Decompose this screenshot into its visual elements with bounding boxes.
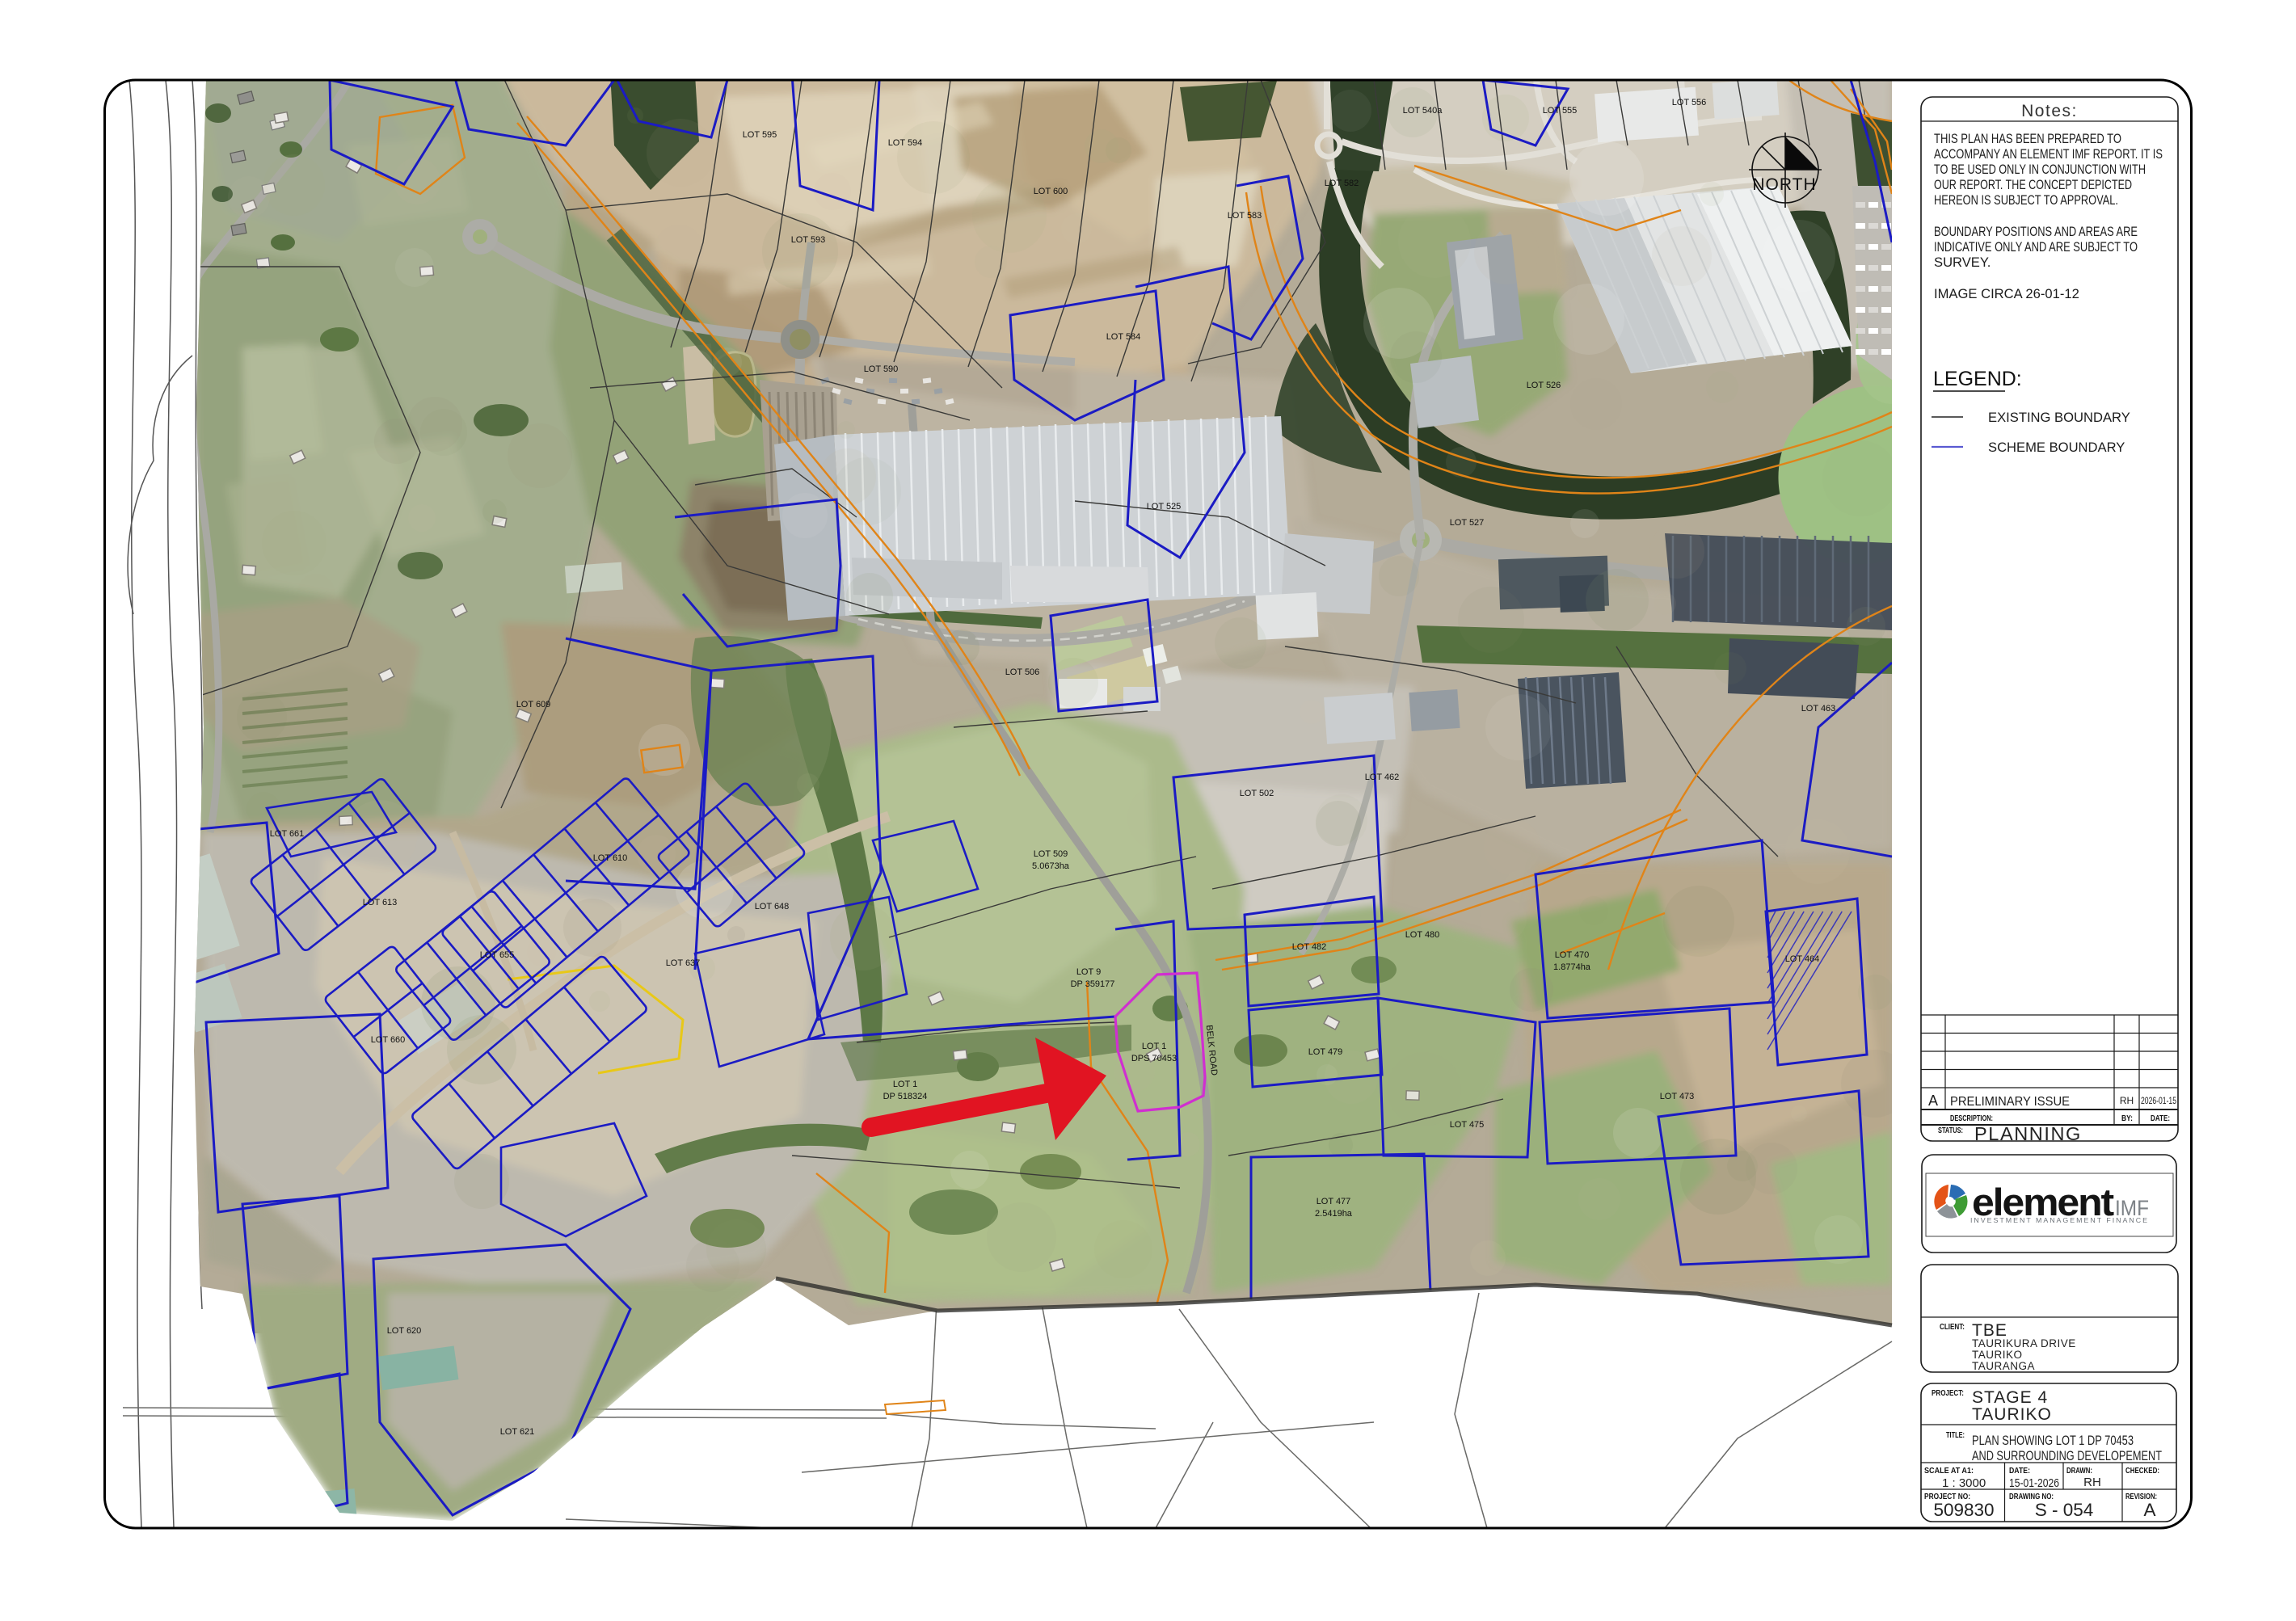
svg-text:LOT 1: LOT 1: [1142, 1042, 1166, 1051]
svg-text:LOT 556: LOT 556: [1672, 98, 1707, 107]
svg-text:DPS 70453: DPS 70453: [1131, 1054, 1177, 1063]
svg-text:Notes:: Notes:: [2021, 102, 2078, 120]
svg-text:1.8774ha: 1.8774ha: [1553, 962, 1591, 972]
svg-text:LOT 506: LOT 506: [1005, 667, 1040, 677]
svg-text:HEREON IS SUBJECT TO APPROVAL: HEREON IS SUBJECT TO APPROVAL.: [1934, 192, 2118, 208]
svg-text:LOT 613: LOT 613: [363, 898, 398, 907]
svg-text:DATE:: DATE:: [2151, 1114, 2170, 1123]
svg-text:LOT 648: LOT 648: [755, 902, 790, 912]
svg-text:2.5419ha: 2.5419ha: [1315, 1209, 1353, 1219]
svg-text:CHECKED:: CHECKED:: [2125, 1467, 2159, 1476]
svg-text:LOT 582: LOT 582: [1325, 179, 1359, 188]
svg-text:LOT 594: LOT 594: [888, 138, 923, 148]
svg-text:RH: RH: [2120, 1095, 2134, 1106]
svg-text:STAGE 4: STAGE 4: [1972, 1388, 2048, 1407]
svg-text:DRAWN:: DRAWN:: [2066, 1467, 2092, 1476]
svg-text:TAURANGA: TAURANGA: [1972, 1360, 2035, 1372]
svg-text:LOT 473: LOT 473: [1660, 1092, 1695, 1101]
svg-text:TAURIKURA DRIVE: TAURIKURA DRIVE: [1972, 1337, 2076, 1349]
svg-text:DESCRIPTION:: DESCRIPTION:: [1950, 1114, 1993, 1123]
svg-text:BY:: BY:: [2121, 1114, 2133, 1123]
svg-text:LOT 661: LOT 661: [270, 829, 305, 839]
svg-text:DP 359177: DP 359177: [1071, 979, 1115, 989]
svg-text:LOT 462: LOT 462: [1365, 773, 1400, 782]
svg-text:TO BE USED ONLY IN CONJUNCTIO: TO BE USED ONLY IN CONJUNCTION WITH: [1934, 162, 2146, 177]
svg-text:509830: 509830: [1933, 1500, 1994, 1520]
svg-text:LEGEND:: LEGEND:: [1933, 368, 2022, 390]
svg-text:5.0673ha: 5.0673ha: [1032, 861, 1070, 871]
svg-text:LOT 1: LOT 1: [893, 1080, 917, 1089]
svg-text:1 : 3000: 1 : 3000: [1942, 1476, 1986, 1490]
svg-text:SURVEY.: SURVEY.: [1934, 255, 1991, 270]
svg-text:LOT 479: LOT 479: [1308, 1047, 1343, 1057]
svg-text:DP 518324: DP 518324: [883, 1092, 928, 1101]
svg-text:LOT 470: LOT 470: [1555, 950, 1590, 960]
svg-text:STATUS:: STATUS:: [1938, 1126, 1963, 1135]
svg-text:LOT 584: LOT 584: [1106, 332, 1141, 342]
svg-text:LOT 600: LOT 600: [1034, 187, 1068, 196]
svg-text:LOT 610: LOT 610: [593, 853, 628, 863]
svg-text:SCALE AT A1:: SCALE AT A1:: [1924, 1467, 1974, 1476]
svg-text:LOT 660: LOT 660: [371, 1035, 406, 1045]
svg-text:LOT 595: LOT 595: [743, 130, 777, 140]
svg-text:A: A: [1928, 1093, 1938, 1109]
svg-text:LOT 621: LOT 621: [500, 1427, 535, 1437]
svg-text:A: A: [2143, 1500, 2155, 1520]
svg-text:AND SURROUNDING DEVELOPEMENT: AND SURROUNDING DEVELOPEMENT: [1972, 1448, 2162, 1463]
svg-text:EXISTING BOUNDARY: EXISTING BOUNDARY: [1988, 410, 2130, 425]
svg-text:TITLE:: TITLE:: [1946, 1431, 1965, 1440]
svg-text:LOT 464: LOT 464: [1785, 954, 1820, 964]
svg-text:LOT 527: LOT 527: [1450, 518, 1485, 528]
svg-text:PROJECT:: PROJECT:: [1932, 1389, 1964, 1398]
svg-text:IMAGE CIRCA 26-01-12: IMAGE CIRCA 26-01-12: [1934, 286, 2079, 301]
svg-text:RH: RH: [2083, 1476, 2101, 1489]
svg-text:LOT 555: LOT 555: [1543, 106, 1578, 116]
svg-text:SCHEME BOUNDARY: SCHEME BOUNDARY: [1988, 440, 2125, 455]
svg-text:NORTH: NORTH: [1752, 175, 1816, 194]
svg-text:CLIENT:: CLIENT:: [1940, 1323, 1965, 1332]
svg-text:LOT 477: LOT 477: [1317, 1197, 1351, 1206]
svg-text:15-01-2026: 15-01-2026: [2009, 1476, 2059, 1490]
svg-text:ACCOMPANY AN ELEMENT IMF REPO: ACCOMPANY AN ELEMENT IMF REPORT. IT IS: [1934, 146, 2163, 162]
svg-text:LOT 637: LOT 637: [666, 958, 701, 968]
svg-text:INDICATIVE ONLY AND ARE SUBJE: INDICATIVE ONLY AND ARE SUBJECT TO: [1934, 239, 2138, 255]
svg-text:LOT 482: LOT 482: [1292, 942, 1327, 952]
svg-text:LOT 502: LOT 502: [1240, 789, 1274, 798]
svg-text:LOT 509: LOT 509: [1034, 849, 1068, 859]
svg-text:LOT 9: LOT 9: [1076, 967, 1101, 977]
svg-text:S - 054: S - 054: [2035, 1500, 2094, 1520]
svg-text:INVESTMENT MANAGEMENT FINANCE: INVESTMENT MANAGEMENT FINANCE: [1970, 1216, 2149, 1224]
svg-text:LOT 590: LOT 590: [864, 364, 899, 374]
svg-text:LOT 655: LOT 655: [480, 950, 515, 960]
svg-text:LOT 609: LOT 609: [516, 700, 551, 709]
svg-text:TAURIKO: TAURIKO: [1972, 1349, 2023, 1361]
svg-text:LOT 620: LOT 620: [387, 1326, 422, 1336]
svg-text:LOT 525: LOT 525: [1147, 502, 1182, 512]
svg-text:THIS PLAN HAS BEEN PREPARED TO: THIS PLAN HAS BEEN PREPARED TO: [1934, 131, 2121, 146]
svg-text:LOT 463: LOT 463: [1801, 704, 1836, 714]
svg-text:TAURIKO: TAURIKO: [1972, 1405, 2052, 1424]
svg-text:BOUNDARY POSITIONS AND AREAS A: BOUNDARY POSITIONS AND AREAS ARE: [1934, 224, 2138, 239]
svg-text:2026-01-15: 2026-01-15: [2141, 1095, 2176, 1106]
svg-text:LOT 475: LOT 475: [1450, 1120, 1485, 1130]
svg-text:PRELIMINARY ISSUE: PRELIMINARY ISSUE: [1950, 1095, 2070, 1109]
svg-text:DATE:: DATE:: [2009, 1467, 2030, 1476]
svg-text:LOT 480: LOT 480: [1405, 930, 1440, 940]
svg-text:OUR REPORT. THE CONCEPT DEPIC: OUR REPORT. THE CONCEPT DEPICTED: [1934, 177, 2132, 192]
svg-text:PLAN SHOWING LOT 1 DP 70453: PLAN SHOWING LOT 1 DP 70453: [1972, 1433, 2134, 1448]
svg-text:PLANNING: PLANNING: [1974, 1123, 2082, 1144]
svg-text:LOT 540a: LOT 540a: [1403, 106, 1443, 116]
svg-text:LOT 526: LOT 526: [1527, 381, 1561, 390]
svg-text:LOT 583: LOT 583: [1228, 211, 1262, 221]
svg-text:LOT 593: LOT 593: [791, 235, 826, 245]
